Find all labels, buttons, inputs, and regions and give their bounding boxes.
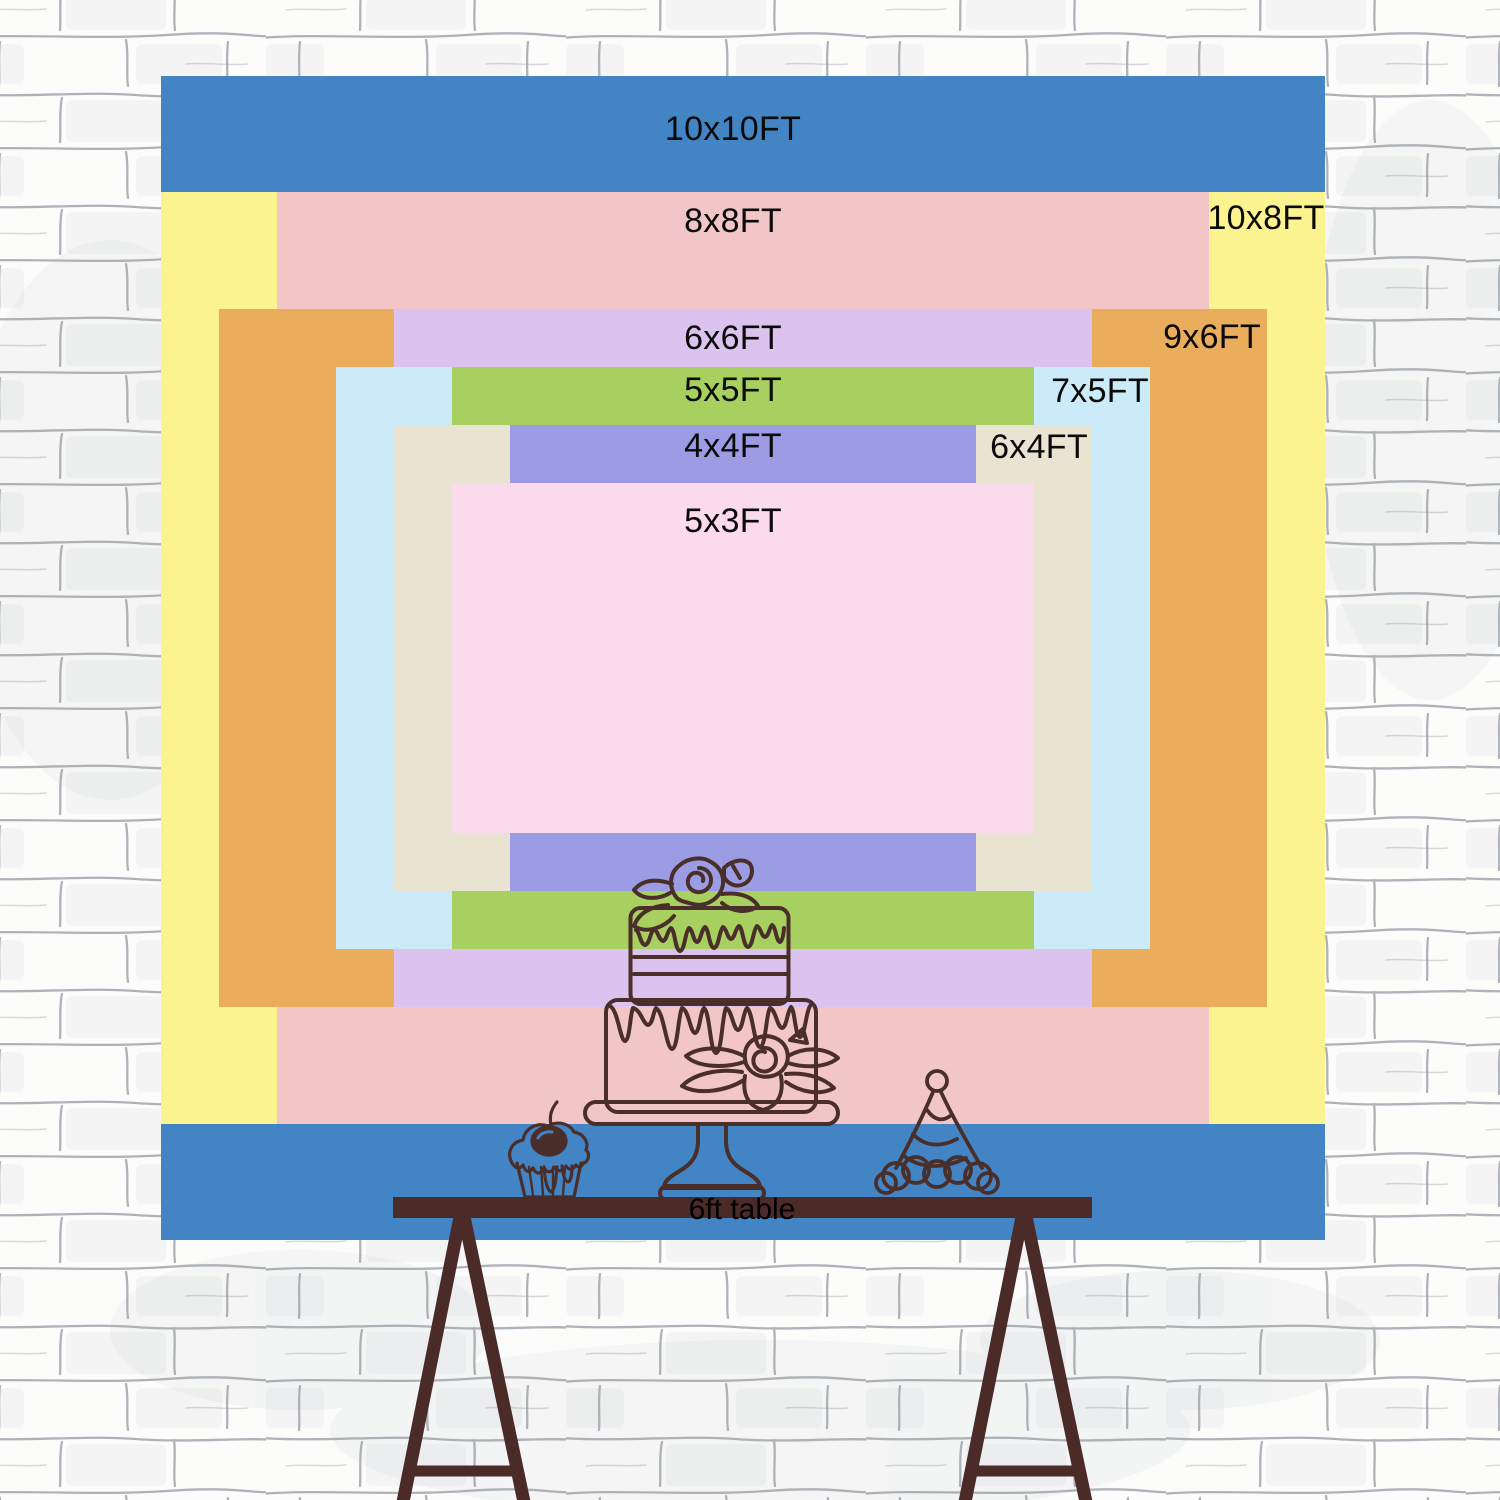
size-label-10x10ft: 10x10FT <box>665 112 801 146</box>
size-label-6x4ft: 6x4FT <box>990 430 1088 464</box>
backdrop-size-chart: 10x10FT10x8FT8x8FT9x6FT6x6FT7x5FT5x5FT6x… <box>0 0 1500 1500</box>
size-label-10x8ft: 10x8FT <box>1207 201 1324 235</box>
size-label-7x5ft: 7x5FT <box>1051 374 1149 408</box>
size-label-5x3ft: 5x3FT <box>684 504 782 538</box>
size-label-8x8ft: 8x8FT <box>684 204 782 238</box>
backdrop-stack: 10x10FT10x8FT8x8FT9x6FT6x6FT7x5FT5x5FT6x… <box>0 0 1500 1500</box>
size-label-6x6ft: 6x6FT <box>684 321 782 355</box>
table-size-label: 6ft table <box>689 1195 796 1225</box>
size-label-9x6ft: 9x6FT <box>1163 320 1261 354</box>
size-label-5x5ft: 5x5FT <box>684 373 782 407</box>
size-label-4x4ft: 4x4FT <box>684 429 782 463</box>
